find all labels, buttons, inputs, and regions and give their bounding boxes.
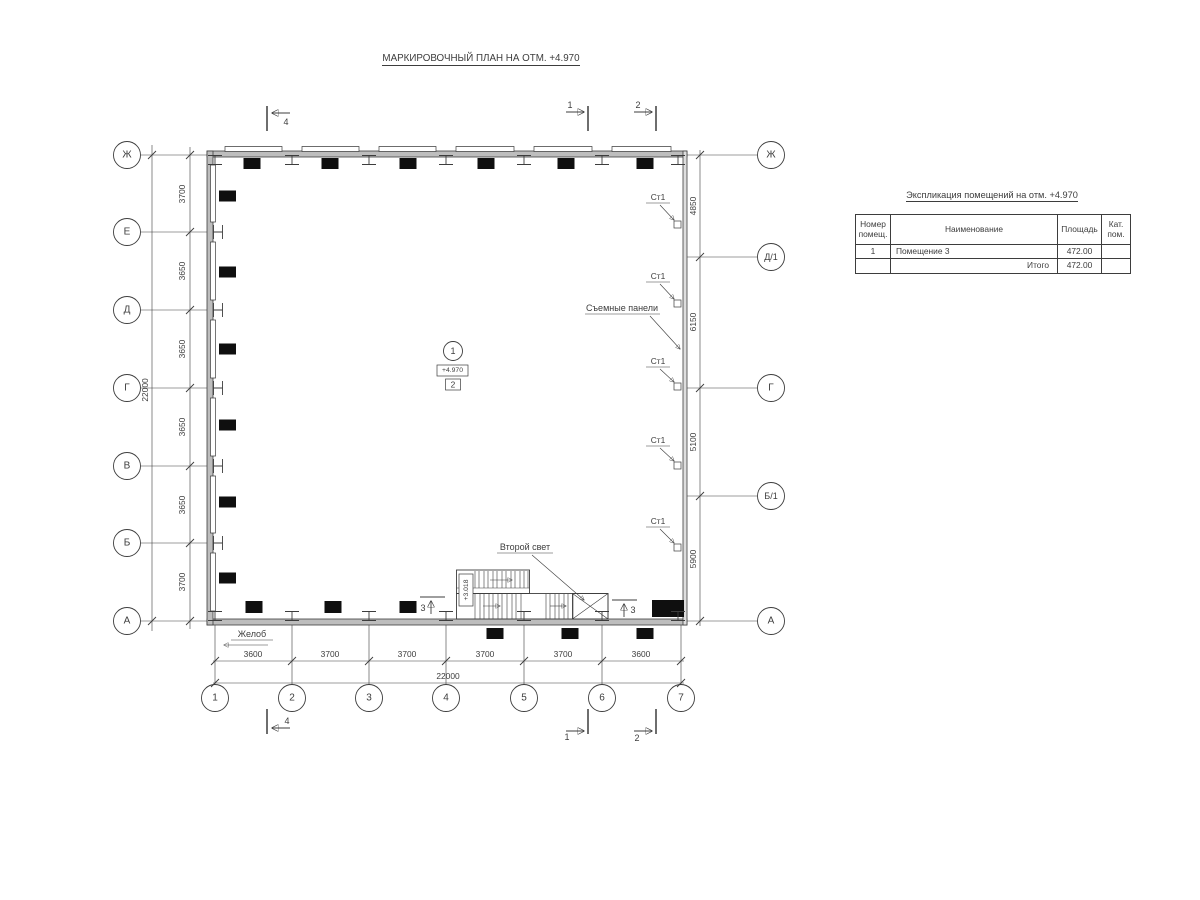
section-3-left-label: 3 [420,603,425,613]
svg-text:4: 4 [443,693,449,704]
stair-treads-lower-1 [475,594,521,619]
section-4-top-label: 4 [283,117,288,127]
dim-bottom-2: 3700 [321,649,340,659]
dim-left-5: 3650 [177,495,187,514]
st1-annotation-4: Ст1 [646,435,681,469]
st1-annotation-3: Ст1 [646,356,681,390]
removable-panels-leader [650,316,680,349]
section-4-bottom-label: 4 [284,716,289,726]
black-panels-bottom-inside [246,601,417,613]
section-markers: 4 1 2 4 1 2 3 3 [267,100,656,743]
black-panel-bottom-large [652,600,684,617]
svg-text:2: 2 [289,693,295,704]
svg-text:6: 6 [599,693,605,704]
room-elevation-text: +4.970 [442,367,463,374]
dim-bottom-5: 3700 [554,649,573,659]
dim-left-2: 3650 [177,261,187,280]
wall-bottom [207,619,687,625]
black-panels-bottom-outside [487,628,654,639]
stair-elevation-text: +3.018 [463,579,470,600]
dimension-lines [148,145,704,687]
section-2-bottom-label: 2 [634,733,639,743]
svg-text:Г: Г [768,383,774,394]
annotations: Желоб Второй свет Съемные панели Ст1 Ст1… [224,192,681,645]
st1-annotation-2: Ст1 [646,271,681,307]
dim-bottom-3: 3700 [398,649,417,659]
floor-plan-drawing: 3700 3650 3650 3650 3650 3700 22000 4850… [0,0,1200,900]
st1-anchor-2 [674,300,681,307]
room-tag-text: 2 [451,380,456,390]
facade-panels [211,147,672,612]
svg-text:В: В [124,461,131,472]
dimension-texts: 3700 3650 3650 3650 3650 3700 22000 4850… [140,184,698,681]
grid-lines-left [141,155,207,621]
svg-text:Г: Г [124,383,130,394]
st1-anchor-1 [674,221,681,228]
section-3-right-label: 3 [630,605,635,615]
dim-right-1: 4850 [688,196,698,215]
gutter-label: Желоб [238,629,266,639]
svg-text:Д: Д [124,305,131,316]
svg-text:Ст1: Ст1 [651,271,666,281]
dim-bottom-4: 3700 [476,649,495,659]
st1-anchor-4 [674,462,681,469]
staircase: +3.018 [457,570,609,619]
dim-right-3: 5100 [688,432,698,451]
dim-right-2: 6150 [688,312,698,331]
dim-left-1: 3700 [177,184,187,203]
stair-lower-band-outline [457,594,609,620]
st1-annotation-5: Ст1 [646,516,681,551]
drawing-sheet: МАРКИРОВОЧНЫЙ ПЛАН НА ОТМ. +4.970 Экспли… [0,0,1200,900]
marking-panels-black [219,158,684,639]
svg-text:Ст1: Ст1 [651,192,666,202]
wall-top [207,151,687,157]
svg-text:Ж: Ж [766,150,776,161]
black-panels-left [219,191,236,584]
svg-text:7: 7 [678,693,684,704]
svg-text:А: А [124,616,131,627]
svg-text:Ст1: Ст1 [651,356,666,366]
dim-left-total: 22000 [140,378,150,402]
second-light-cross [573,594,609,620]
dim-bottom-total: 22000 [436,671,460,681]
svg-text:5: 5 [521,693,527,704]
dim-left-3: 3650 [177,339,187,358]
svg-text:Ст1: Ст1 [651,435,666,445]
stair-treads-upper [475,571,528,588]
st1-annotation-1: Ст1 [646,192,681,228]
svg-text:Б/1: Б/1 [764,491,777,501]
svg-text:Б: Б [124,538,131,549]
section-2-top-label: 2 [635,100,640,110]
section-1-top-label: 1 [567,100,572,110]
removable-panels-label: Съемные панели [586,303,658,313]
dim-left-6: 3700 [177,572,187,591]
section-1-bottom-label: 1 [564,732,569,742]
stair-treads-lower-2 [546,594,573,619]
second-light-label: Второй свет [500,542,550,552]
svg-text:1: 1 [212,693,218,704]
black-panels-top [244,158,654,169]
st1-anchor-3 [674,383,681,390]
svg-text:Ст1: Ст1 [651,516,666,526]
st1-anchor-5 [674,544,681,551]
svg-text:Ж: Ж [122,150,132,161]
svg-text:Е: Е [124,227,131,238]
dim-bottom-1: 3600 [244,649,263,659]
dim-right-4: 5900 [688,549,698,568]
room-marker: 1 +4.970 2 [437,342,468,391]
svg-text:Д/1: Д/1 [764,252,778,262]
svg-text:А: А [768,616,775,627]
room-number-text: 1 [450,346,455,356]
wall-right [683,151,687,625]
dim-left-4: 3650 [177,417,187,436]
dim-bottom-6: 3600 [632,649,651,659]
svg-text:3: 3 [366,693,372,704]
